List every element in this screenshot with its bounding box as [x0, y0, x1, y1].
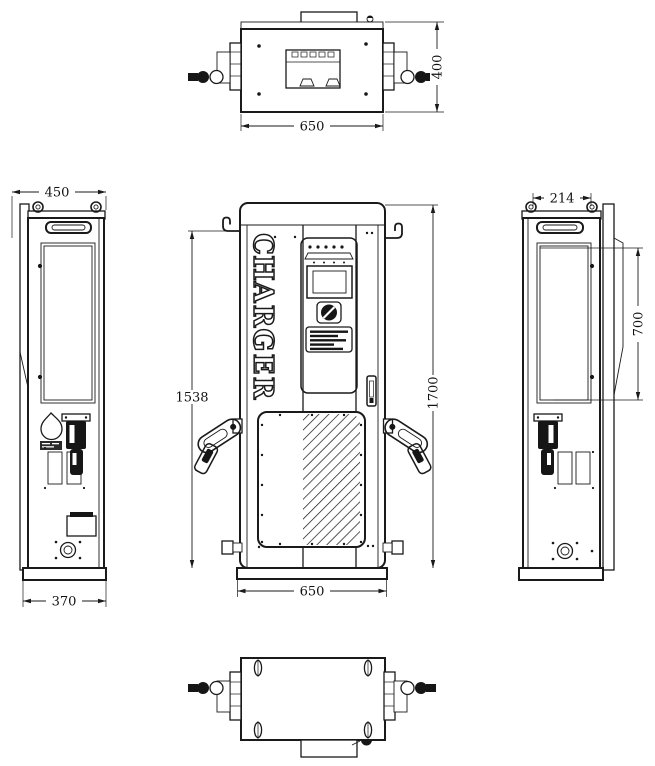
- lower-access-panel: [258, 412, 365, 547]
- dim-label-650-top: 650: [300, 120, 325, 135]
- dim-label-650-front: 650: [300, 585, 325, 600]
- dim-label-1538: 1538: [175, 391, 208, 406]
- front-base-plinth: [237, 568, 387, 579]
- dim-label-700: 700: [632, 312, 647, 337]
- right-top-handle: [537, 222, 583, 233]
- rear-door-panel-right-view: [603, 204, 614, 570]
- front-view: C H A R G E R: [172, 203, 442, 600]
- bottom-view: [188, 658, 436, 757]
- svg-text:A: A: [247, 281, 278, 304]
- right-side-view: 214 700: [519, 191, 647, 580]
- bottom-cable-duct: [301, 740, 357, 757]
- bottom-drain-detail: [361, 740, 372, 746]
- dimension-370: 370: [23, 581, 106, 610]
- cable-gland-left-bottom: [188, 672, 241, 720]
- cable-gland-right-bottom: [384, 672, 436, 720]
- svg-text:E: E: [247, 354, 278, 375]
- cable-gland-left-top: [188, 43, 241, 90]
- dimension-650-top: 650: [241, 114, 383, 135]
- cable-gland-right-top: [383, 43, 436, 90]
- charging-gun-left: [193, 416, 243, 475]
- instruction-label: [306, 327, 352, 352]
- dim-label-214: 214: [550, 192, 575, 207]
- lifting-hook-left: [223, 218, 240, 232]
- top-view: 650 400: [188, 12, 446, 135]
- technical-drawing: 650 400 C H A R G: [0, 0, 655, 766]
- svg-text:R: R: [247, 305, 278, 328]
- dim-label-450: 450: [45, 186, 70, 201]
- dimension-1538: 1538: [172, 231, 240, 568]
- emergency-stop-button: [317, 302, 341, 323]
- left-side-view: 450 370: [12, 185, 106, 610]
- dim-label-370: 370: [52, 595, 77, 610]
- svg-text:G: G: [247, 328, 278, 351]
- right-base-plinth: [519, 568, 603, 580]
- left-louver-vent: [41, 243, 95, 403]
- left-top-handle: [46, 222, 91, 233]
- dim-label-400: 400: [431, 55, 446, 80]
- right-louver-vent: [537, 243, 591, 403]
- svg-text:H: H: [247, 255, 278, 281]
- top-inlet-panel: [286, 50, 340, 88]
- svg-text:C: C: [247, 233, 278, 255]
- dimension-214: 214: [533, 191, 591, 207]
- hatch-area: [303, 414, 360, 545]
- lifting-hook-right: [385, 224, 402, 239]
- bottom-view-outline: [241, 658, 385, 740]
- drawing-canvas: 650 400 C H A R G: [0, 0, 655, 766]
- charging-gun-right: [382, 416, 432, 475]
- left-small-label: [40, 441, 62, 450]
- top-flange: [241, 22, 383, 29]
- dim-label-1700: 1700: [427, 376, 442, 409]
- svg-text:R: R: [247, 377, 278, 400]
- left-junction-box: [67, 512, 96, 536]
- dimension-650-front: 650: [238, 580, 387, 600]
- left-base-plinth: [23, 568, 106, 580]
- dimension-1700: 1700: [385, 205, 442, 568]
